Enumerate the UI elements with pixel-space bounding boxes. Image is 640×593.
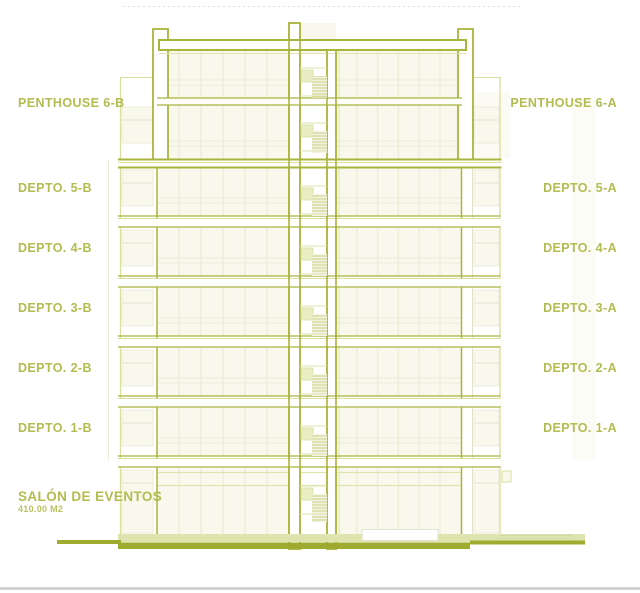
floor-label-depto-2-b: DEPTO. 2-B [18, 361, 92, 375]
floor-label-depto-2-a: DEPTO. 2-A [543, 361, 617, 375]
elevation-drawing-canvas: PENTHOUSE 6-BDEPTO. 5-BDEPTO. 4-BDEPTO. … [0, 0, 640, 593]
salon-title: SALÓN DE EVENTOS [18, 489, 162, 504]
floor-label-depto-4-b: DEPTO. 4-B [18, 241, 92, 255]
floor-label-depto-1-a: DEPTO. 1-A [543, 421, 617, 435]
floor-label-depto-5-a: DEPTO. 5-A [543, 181, 617, 195]
floor-label-depto-1-b: DEPTO. 1-B [18, 421, 92, 435]
floor-label-depto-5-b: DEPTO. 5-B [18, 181, 92, 195]
floor-label-depto-4-a: DEPTO. 4-A [543, 241, 617, 255]
floor-label-penthouse-6-a: PENTHOUSE 6-A [510, 96, 617, 110]
floor-label-depto-3-a: DEPTO. 3-A [543, 301, 617, 315]
floor-label-penthouse-6-b: PENTHOUSE 6-B [18, 96, 125, 110]
salon-label: SALÓN DE EVENTOS 410.00 M2 [18, 489, 162, 515]
floor-label-depto-3-b: DEPTO. 3-B [18, 301, 92, 315]
salon-area: 410.00 M2 [18, 504, 162, 515]
elevator-core-interior [300, 68, 327, 522]
